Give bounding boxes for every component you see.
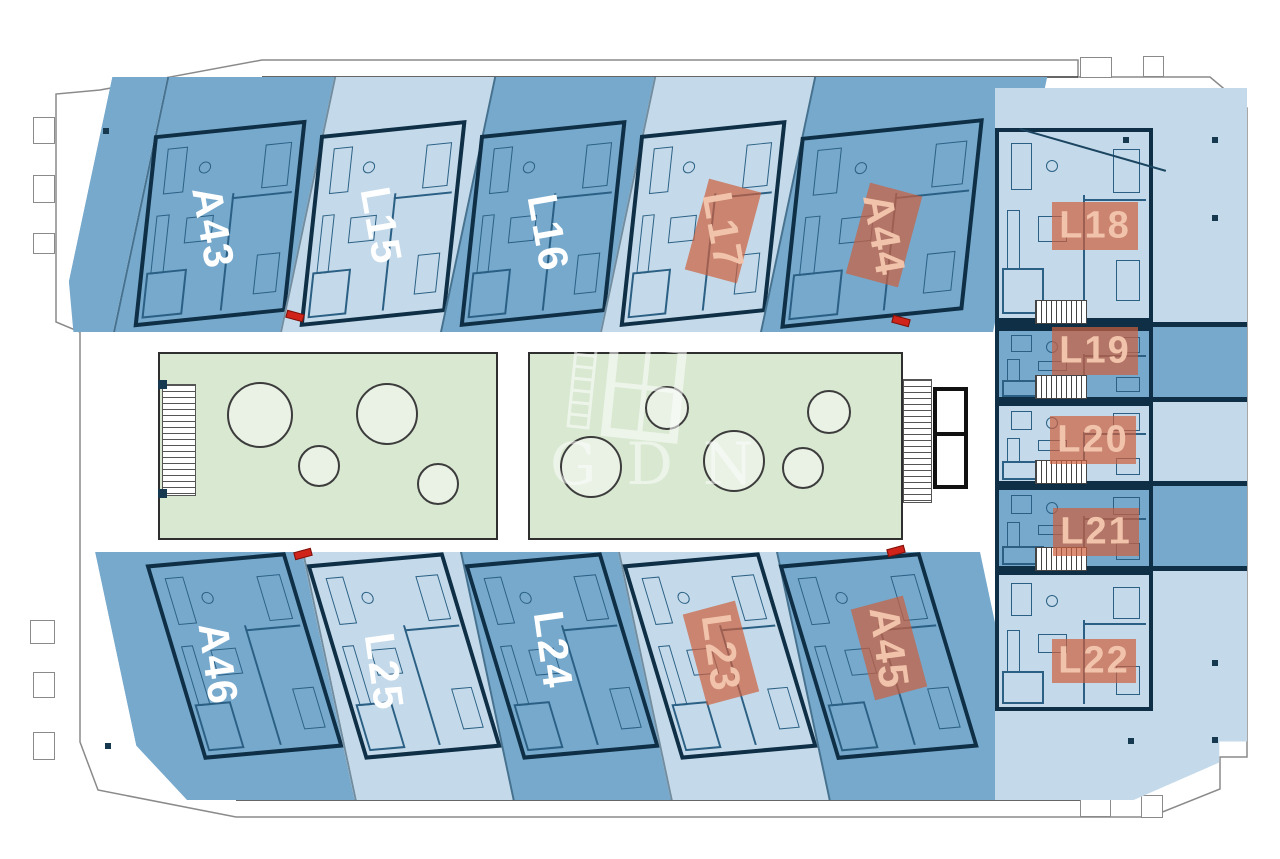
furniture: [1113, 587, 1140, 619]
furniture: [767, 687, 800, 730]
furniture: [657, 645, 687, 706]
furniture: [194, 701, 245, 751]
furniture: [261, 142, 292, 189]
furniture: [252, 252, 279, 295]
furniture: [1007, 210, 1021, 270]
furniture: [1007, 438, 1021, 462]
staircase-east: [903, 379, 932, 503]
balcony-bump: [1143, 56, 1164, 77]
furniture: [798, 577, 831, 625]
furniture: [307, 269, 351, 319]
furniture: [743, 142, 773, 189]
furniture: [812, 148, 841, 197]
furniture: [1002, 671, 1044, 704]
furniture: [329, 147, 353, 195]
furniture: [523, 161, 536, 174]
column-marker: [105, 743, 111, 749]
column-marker: [158, 489, 167, 498]
column-marker: [1212, 215, 1218, 221]
furniture: [1011, 411, 1032, 430]
furniture: [292, 686, 325, 729]
furniture: [150, 214, 169, 274]
balcony-bump: [1080, 57, 1112, 78]
column-marker: [1212, 137, 1218, 143]
column-marker: [1128, 738, 1134, 744]
column-marker: [1212, 737, 1218, 743]
furniture: [834, 592, 849, 605]
furniture: [451, 687, 484, 730]
unit-label-L19: L19: [1059, 330, 1130, 373]
tree: [356, 383, 418, 445]
furniture: [1011, 583, 1032, 616]
furniture: [231, 191, 292, 199]
furniture: [574, 252, 600, 295]
furniture: [671, 701, 721, 751]
furniture: [627, 269, 671, 319]
elevator-shaft: [933, 387, 968, 489]
planter-box: [33, 732, 55, 760]
furniture: [1046, 595, 1058, 607]
furniture: [827, 701, 879, 751]
furniture: [1007, 522, 1021, 547]
furniture: [360, 592, 375, 605]
tree: [782, 447, 824, 489]
furniture: [467, 269, 511, 319]
furniture: [394, 191, 452, 199]
tree: [703, 430, 765, 492]
furniture: [1007, 359, 1021, 380]
furniture: [404, 624, 459, 631]
furniture: [1046, 160, 1058, 172]
column-marker: [1123, 137, 1129, 143]
furniture: [683, 161, 696, 174]
unit-label-L21: L21: [1060, 511, 1131, 554]
furniture: [854, 161, 867, 174]
furniture: [814, 645, 844, 706]
furniture: [164, 577, 197, 625]
furniture: [243, 625, 281, 745]
elevator-cab: [937, 391, 964, 436]
furniture: [415, 574, 452, 621]
furniture: [1007, 630, 1021, 672]
furniture: [1116, 377, 1140, 392]
furniture: [799, 215, 821, 275]
unit-label-L18: L18: [1059, 205, 1130, 248]
courtyard-left: [158, 352, 498, 540]
staircase-west: [162, 384, 196, 496]
unit-label-L22: L22: [1058, 640, 1129, 683]
furniture: [141, 269, 186, 319]
furniture: [489, 147, 513, 195]
planter-box: [33, 175, 55, 203]
furniture: [1011, 143, 1032, 190]
furniture: [513, 701, 563, 751]
furniture: [573, 574, 610, 621]
furniture: [363, 161, 376, 174]
furniture: [923, 251, 955, 294]
tree: [227, 382, 293, 448]
furniture: [198, 161, 211, 174]
furniture: [649, 147, 673, 195]
furniture: [636, 214, 655, 274]
courtyard-right: [528, 352, 903, 540]
tree: [417, 463, 459, 505]
furniture: [609, 687, 642, 730]
furniture: [423, 142, 453, 189]
tree: [807, 390, 851, 434]
furniture: [1116, 260, 1140, 301]
furniture: [676, 592, 691, 605]
unit-label-L20: L20: [1057, 419, 1128, 462]
furniture: [325, 577, 357, 625]
column-marker: [1212, 660, 1218, 666]
tree: [560, 436, 622, 498]
furniture: [518, 592, 533, 605]
furniture: [414, 252, 440, 295]
furniture: [1083, 199, 1146, 201]
furniture: [583, 142, 613, 189]
planter-box: [33, 672, 55, 698]
furniture: [789, 269, 843, 320]
furniture: [316, 214, 335, 274]
furniture: [244, 624, 300, 631]
tree: [298, 445, 340, 487]
floorplan-canvas: GDN A43L15L16L17A44L18L19L20L21L22A45L23…: [0, 0, 1280, 859]
furniture: [499, 645, 529, 706]
planter-box: [33, 117, 55, 144]
furniture: [1011, 495, 1032, 514]
furniture: [200, 592, 215, 605]
planter-box: [33, 233, 55, 254]
furniture: [927, 686, 961, 729]
column-marker: [103, 128, 109, 134]
furniture: [483, 577, 515, 625]
furniture: [641, 577, 673, 625]
furniture: [256, 574, 293, 621]
column-marker: [158, 380, 167, 389]
furniture: [1083, 623, 1146, 625]
planter-box: [30, 620, 55, 644]
furniture: [163, 147, 188, 195]
furniture: [476, 214, 495, 274]
unit-area-L22[interactable]: [995, 566, 1247, 800]
stair-hatch: [1035, 300, 1087, 324]
furniture: [1011, 335, 1032, 352]
furniture: [931, 140, 967, 187]
stair-hatch: [1035, 375, 1087, 399]
tree: [645, 386, 689, 430]
